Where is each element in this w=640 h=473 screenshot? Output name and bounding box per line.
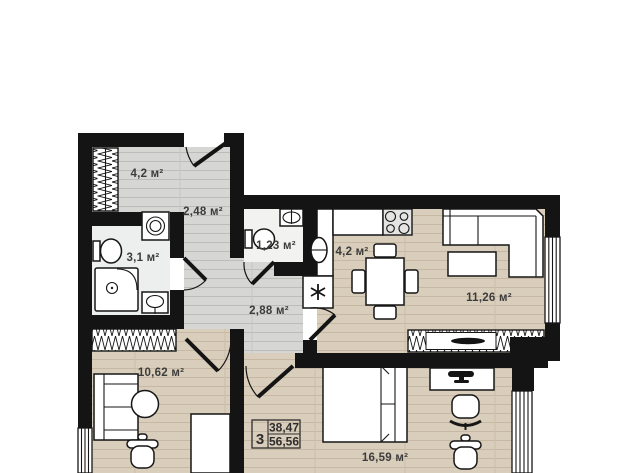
floor-plan-canvas: 4,2 м² 2,48 м² 3,1 м² 1,23 м² 4,2 м² 11,… (0, 0, 640, 473)
wardrobe-icon (92, 329, 176, 351)
window (78, 428, 92, 473)
sink-icon (142, 292, 168, 314)
monitor-icon (448, 371, 474, 377)
round-table-icon (132, 391, 159, 418)
wall-segment (230, 195, 560, 209)
desk-icon (430, 368, 494, 390)
wall-segment (170, 212, 184, 258)
wall-segment (510, 337, 560, 361)
room-area-label: 4,2 м² (335, 246, 368, 258)
living-area-value: 38,47 (269, 421, 299, 435)
boiler-asterisk-icon (303, 276, 333, 308)
sink-icon (280, 209, 303, 226)
wall-segment (230, 209, 244, 258)
shower-icon (95, 268, 138, 311)
tv-icon (451, 338, 485, 344)
coffee-table-icon (448, 252, 496, 276)
room-area-label: 10,62 м² (138, 367, 184, 379)
floor-plan: 4,2 м² 2,48 м² 3,1 м² 1,23 м² 4,2 м² 11,… (0, 0, 640, 473)
wall-segment (274, 262, 306, 276)
kitchen-sink-icon (311, 238, 327, 263)
wall-segment (512, 361, 534, 391)
room-area-label: 2,48 м² (183, 206, 223, 218)
wall-segment (78, 133, 92, 428)
wall-segment (230, 329, 244, 473)
washing-machine-icon (142, 212, 169, 240)
wall-segment (78, 315, 184, 329)
total-area-value: 56,56 (269, 435, 299, 449)
room-area-label: 3,1 м² (126, 252, 159, 264)
window (512, 391, 532, 473)
wall-segment (78, 133, 184, 147)
wall-segment (230, 133, 244, 195)
wall-segment (78, 212, 142, 226)
room-area-label: 1,23 м² (256, 240, 296, 252)
cabinet-icon (191, 414, 230, 473)
bed-icon (323, 366, 407, 442)
rooms-count: 3 (256, 431, 264, 448)
room-area-label: 2,88 м² (249, 305, 289, 317)
room-area-label: 16,59 м² (362, 452, 408, 464)
kitchen-counter-top (333, 209, 383, 235)
office-chair-icon (450, 395, 481, 430)
toilet-icon (93, 239, 122, 263)
room-area-label: 4,2 м² (130, 168, 163, 180)
stove-icon (383, 209, 412, 235)
wall-segment (170, 290, 184, 315)
window (545, 237, 560, 323)
room-area-label: 11,26 м² (466, 292, 512, 304)
wardrobe-icon (93, 148, 118, 211)
